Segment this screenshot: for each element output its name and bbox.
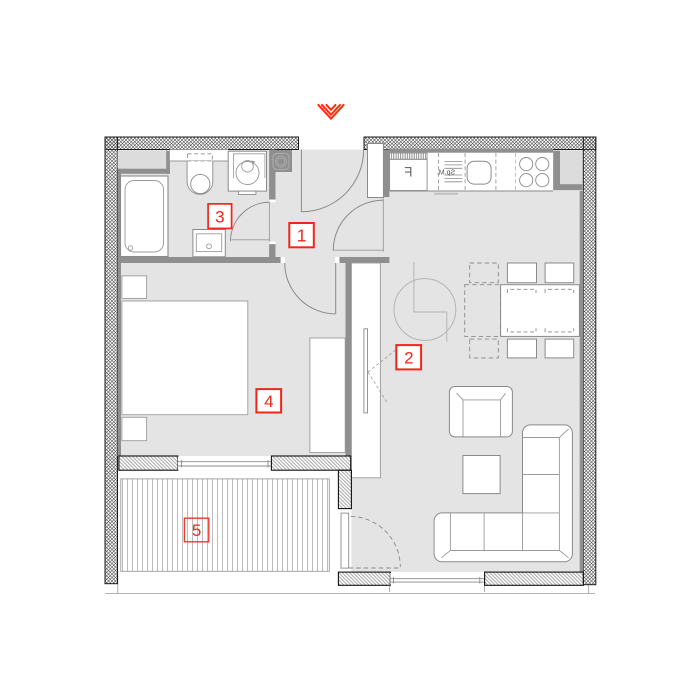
svg-text:4: 4 — [264, 392, 273, 411]
svg-text:1: 1 — [297, 225, 307, 245]
svg-text:2: 2 — [404, 348, 413, 367]
svg-text:5: 5 — [192, 521, 201, 540]
svg-text:Sp.M.: Sp.M. — [437, 169, 455, 176]
svg-text:F: F — [404, 164, 412, 179]
svg-text:3: 3 — [215, 207, 224, 226]
